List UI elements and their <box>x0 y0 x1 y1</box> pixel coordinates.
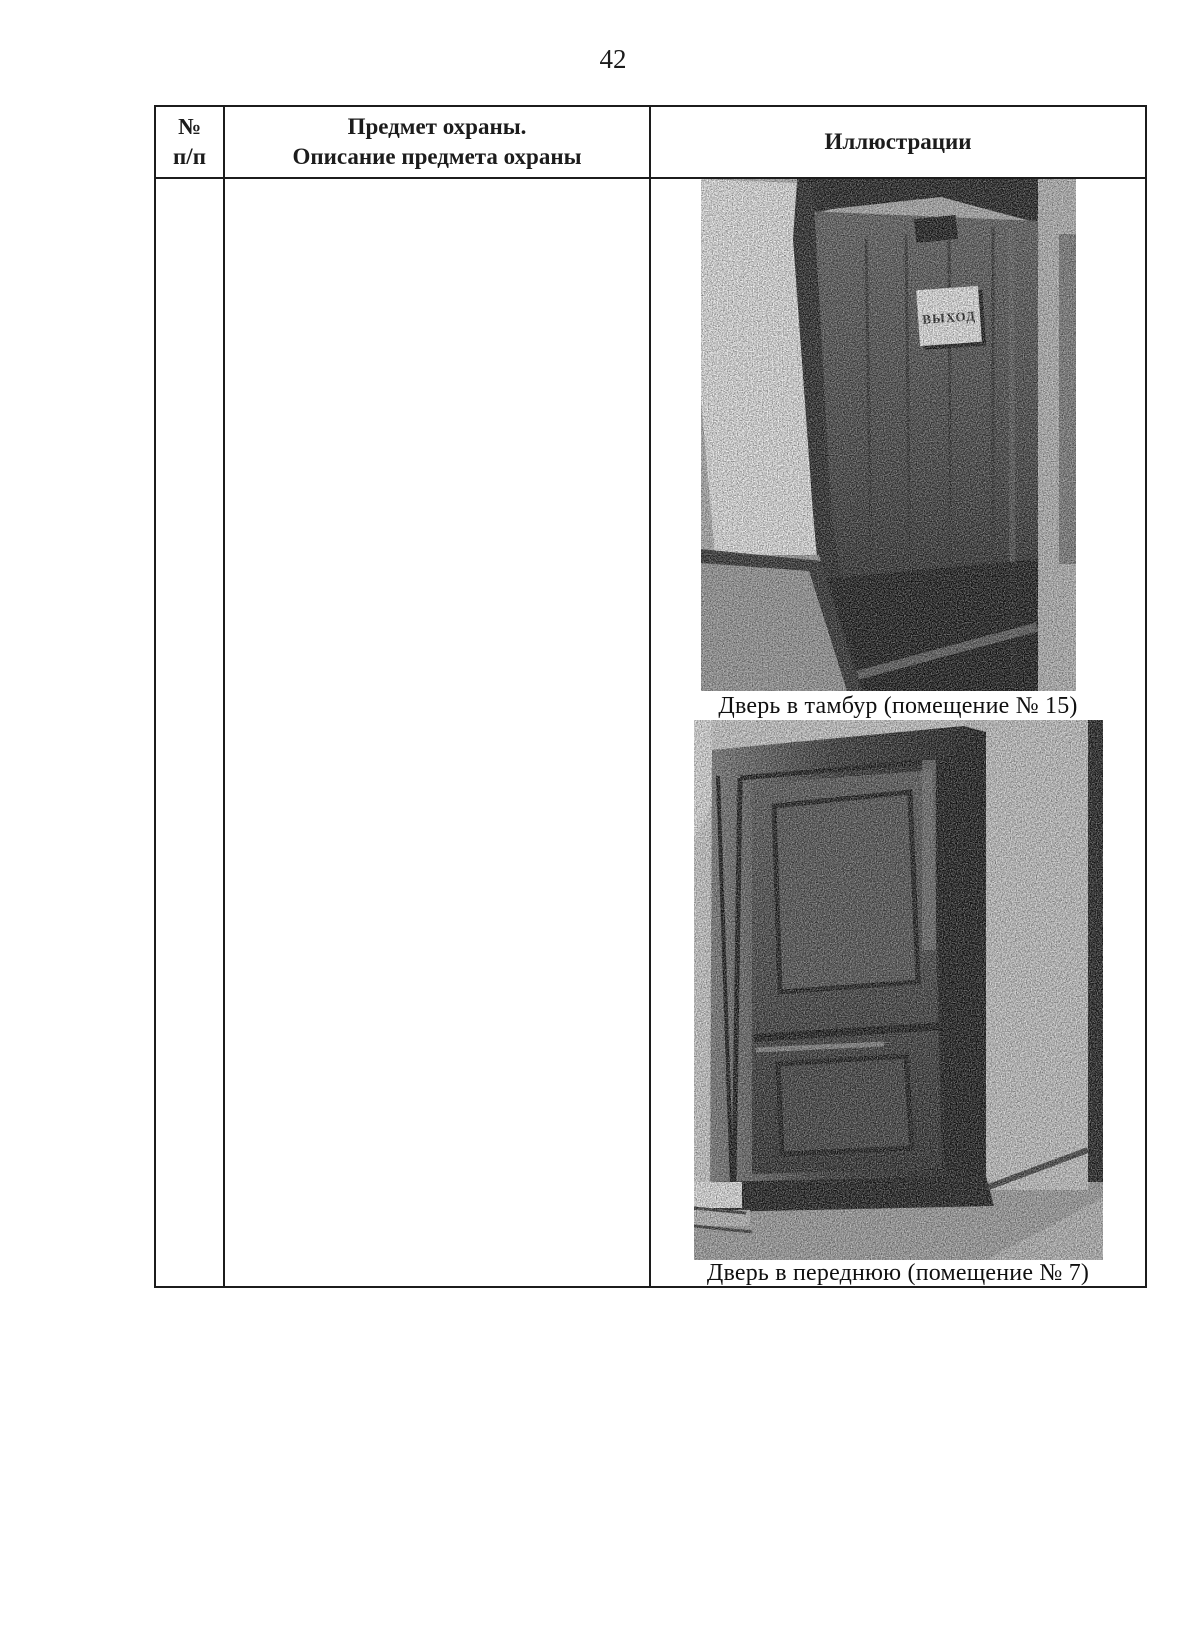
photo-caption-tambour: Дверь в тамбур (помещение № 15) <box>651 694 1145 719</box>
table-header-subject: Предмет охраны. Описание предмета охраны <box>225 107 651 179</box>
door-to-front-room-photo <box>694 720 1103 1260</box>
door-to-tambour-photo: ВЫХОД <box>701 179 1076 691</box>
page-number: 42 <box>600 44 627 75</box>
photo-caption-front-room: Дверь в переднюю (помещение № 7) <box>651 1261 1145 1286</box>
row-illustrations-cell: ВЫХОД Дверь в тамбур (помещение № 15) <box>651 179 1145 1286</box>
table-header-illustrations: Иллюстрации <box>651 107 1145 179</box>
protection-subject-table: № п/п Предмет охраны. Описание предмета … <box>154 105 1147 1288</box>
row-description-cell <box>225 179 651 1286</box>
table-header-number: № п/п <box>156 107 225 179</box>
row-number-cell <box>156 179 225 1286</box>
